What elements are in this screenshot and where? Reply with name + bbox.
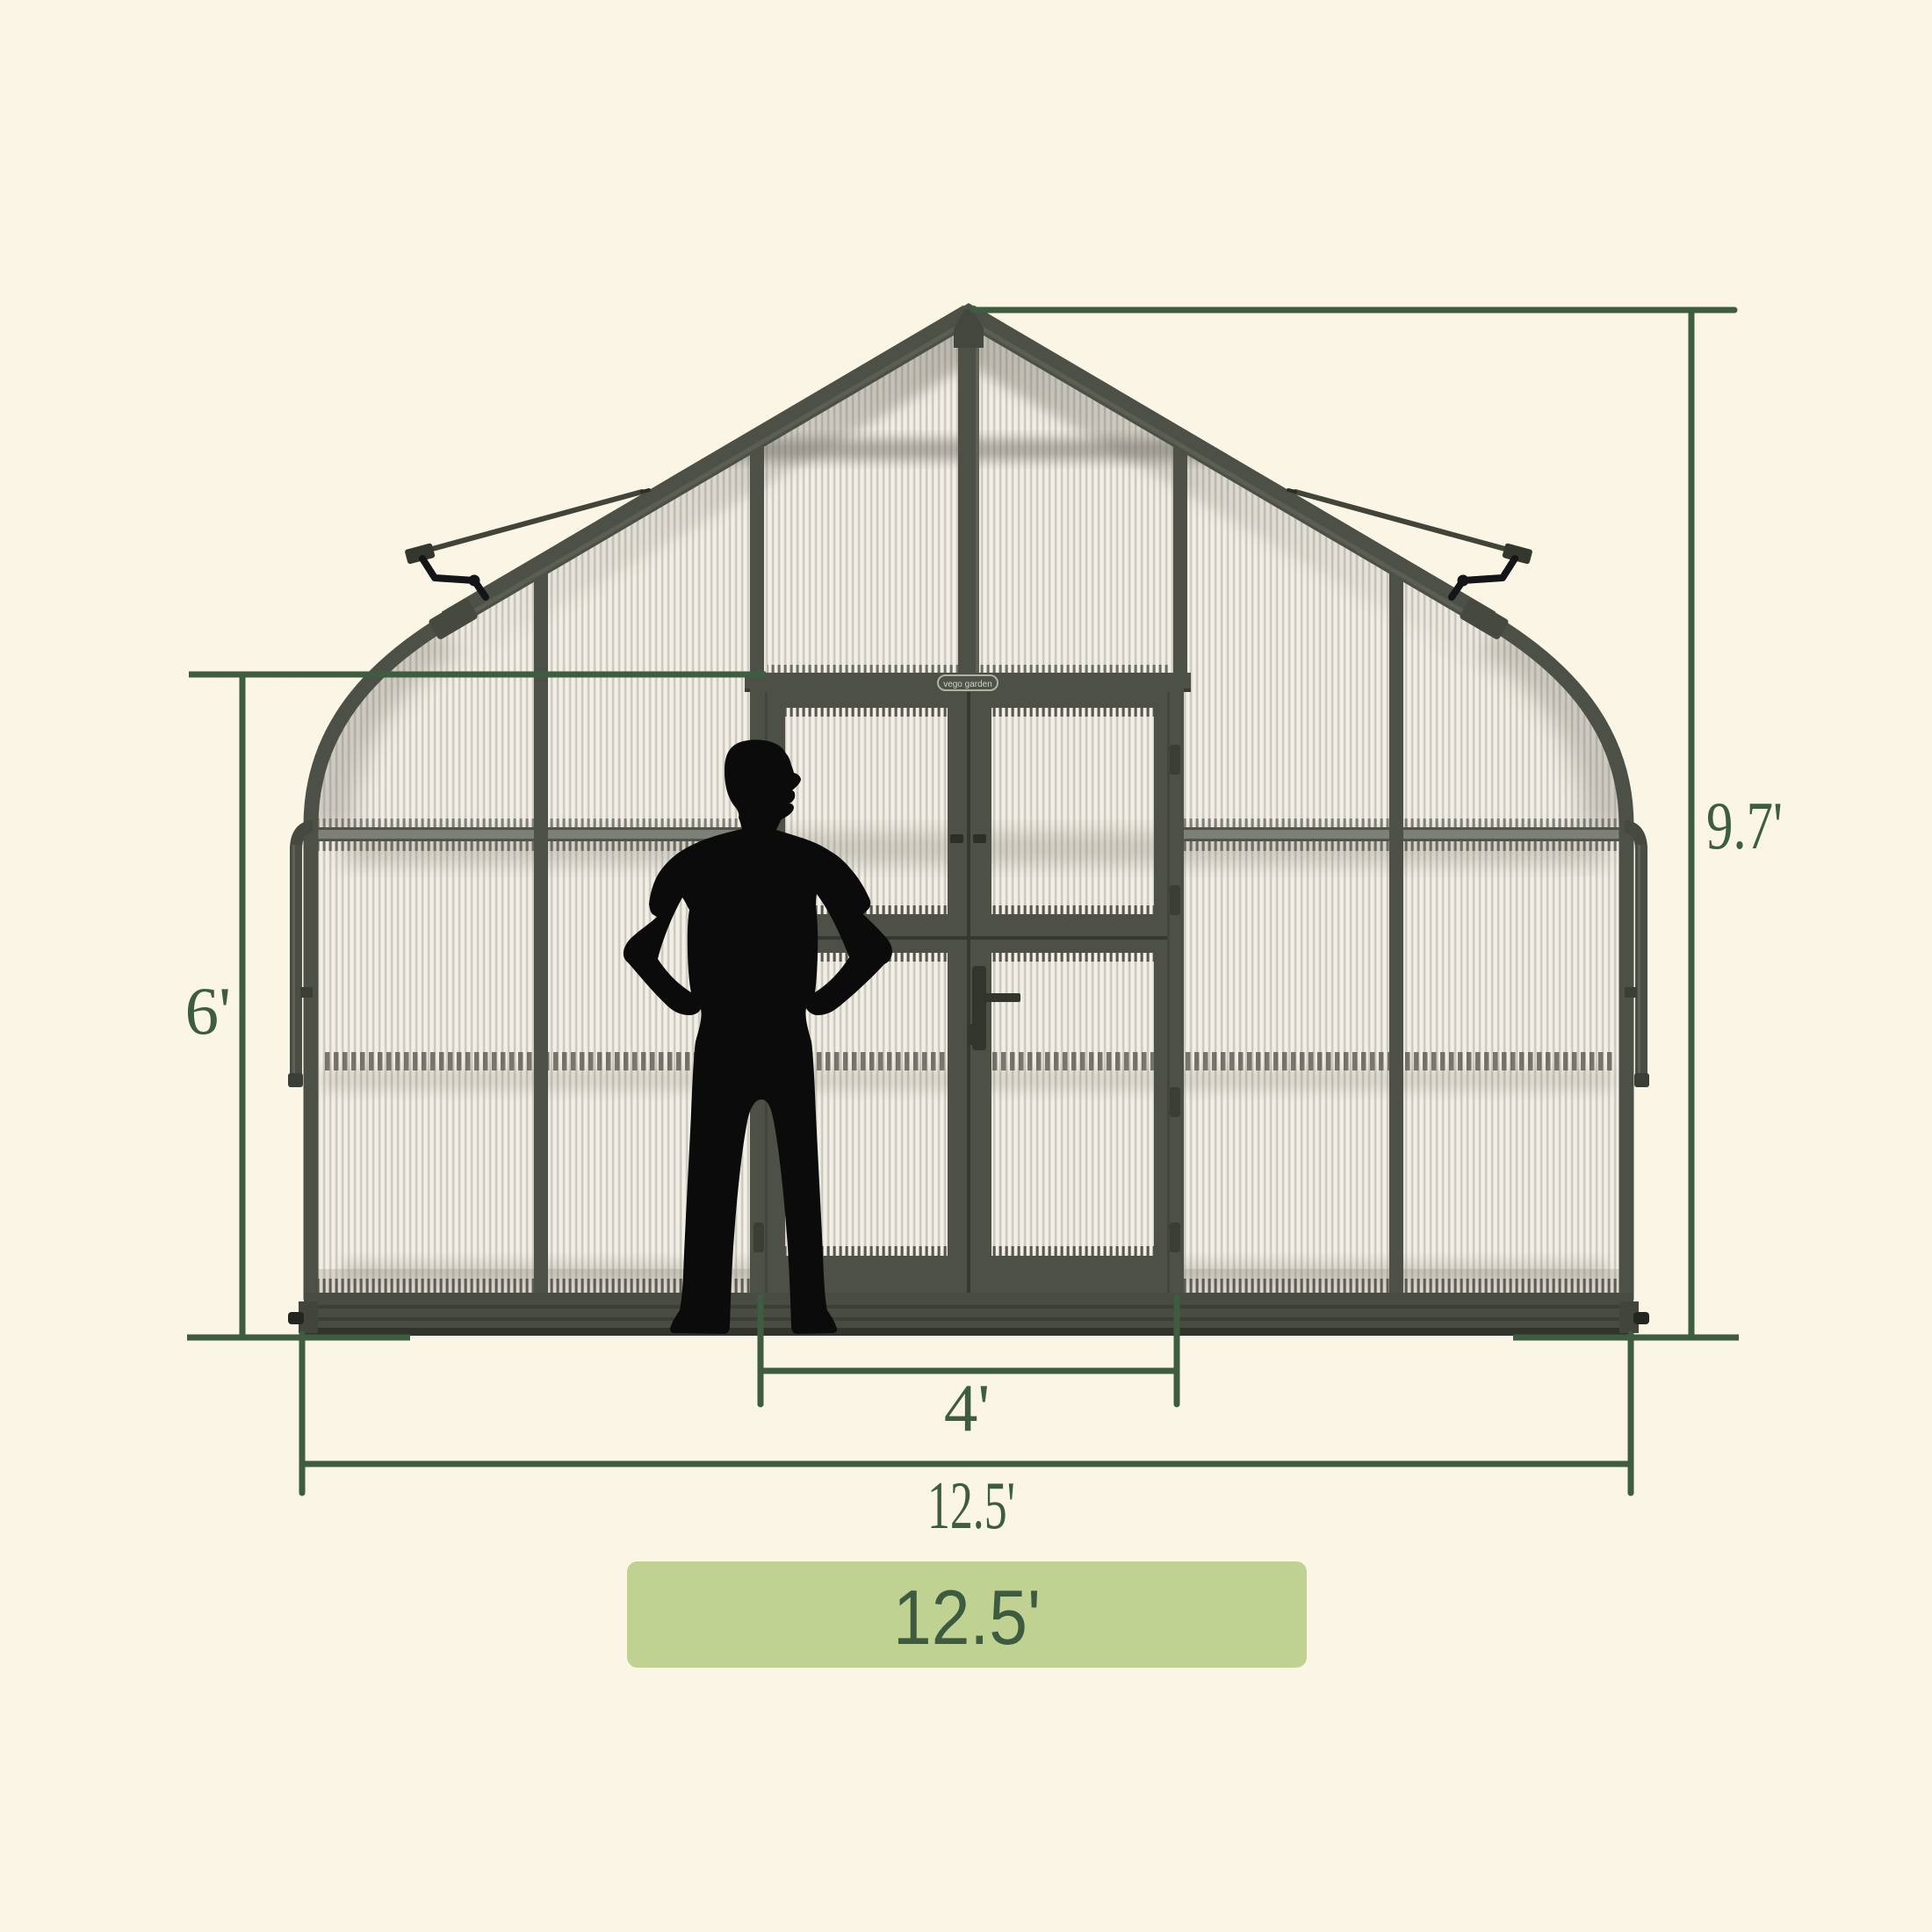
svg-text:12.5': 12.5' (893, 1574, 1041, 1661)
svg-text:vego garden: vego garden (943, 680, 992, 689)
svg-text:12.5': 12.5' (927, 1467, 1015, 1543)
svg-text:9.7': 9.7' (1706, 788, 1783, 863)
svg-text:6': 6' (185, 973, 231, 1049)
svg-text:4': 4' (944, 1370, 990, 1445)
